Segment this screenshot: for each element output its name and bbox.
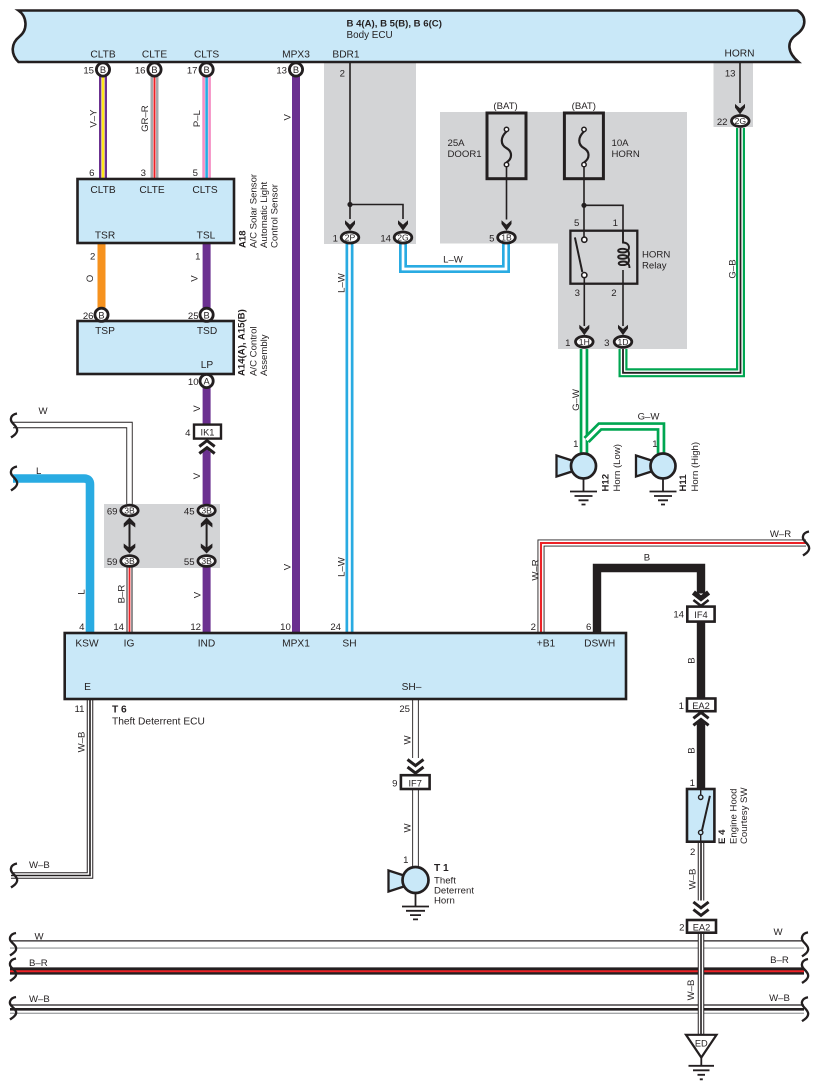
svg-text:B: B xyxy=(100,65,106,75)
svg-text:CLTS: CLTS xyxy=(194,50,219,61)
svg-text:DSWH: DSWH xyxy=(584,639,615,650)
svg-text:W–R: W–R xyxy=(770,529,791,540)
svg-text:V: V xyxy=(192,405,203,412)
svg-text:45: 45 xyxy=(184,507,195,518)
svg-text:2: 2 xyxy=(690,847,695,858)
svg-text:B: B xyxy=(203,65,209,75)
svg-text:(BAT): (BAT) xyxy=(572,101,596,112)
svg-text:CLTE: CLTE xyxy=(139,185,164,196)
svg-text:(BAT): (BAT) xyxy=(493,101,517,112)
svg-text:IK1: IK1 xyxy=(201,428,215,438)
svg-text:B: B xyxy=(687,657,698,663)
svg-text:9: 9 xyxy=(392,779,397,790)
svg-text:5: 5 xyxy=(489,234,494,245)
svg-text:TSD: TSD xyxy=(197,326,217,337)
svg-text:E 4: E 4 xyxy=(717,829,728,844)
svg-text:1: 1 xyxy=(679,701,684,712)
svg-text:CLTB: CLTB xyxy=(90,185,115,196)
svg-text:5: 5 xyxy=(574,218,579,229)
svg-text:11: 11 xyxy=(75,704,85,715)
svg-text:BDR1: BDR1 xyxy=(332,50,360,61)
svg-text:T 6: T 6 xyxy=(112,705,127,716)
svg-text:IF4: IF4 xyxy=(694,610,707,620)
svg-text:W–B: W–B xyxy=(29,860,50,871)
svg-text:3: 3 xyxy=(141,168,146,179)
svg-text:10A: 10A xyxy=(612,138,630,149)
svg-text:Horn (Low): Horn (Low) xyxy=(612,444,623,491)
svg-text:W: W xyxy=(39,406,49,417)
svg-text:O: O xyxy=(85,275,96,282)
svg-text:15: 15 xyxy=(83,66,94,77)
svg-text:V: V xyxy=(193,591,204,598)
svg-text:Courtesy SW: Courtesy SW xyxy=(739,787,750,844)
svg-text:17: 17 xyxy=(187,66,198,77)
svg-text:2P: 2P xyxy=(345,233,356,243)
svg-text:13: 13 xyxy=(725,69,736,80)
svg-text:24: 24 xyxy=(330,622,341,633)
svg-text:L–W: L–W xyxy=(337,556,348,577)
svg-text:1: 1 xyxy=(652,439,657,450)
svg-text:+B1: +B1 xyxy=(537,639,556,650)
svg-text:25: 25 xyxy=(188,311,199,322)
svg-text:1: 1 xyxy=(403,855,408,866)
svg-text:B 4(A), B 5(B), B 6(C): B 4(A), B 5(B), B 6(C) xyxy=(347,19,442,30)
svg-text:TSL: TSL xyxy=(197,231,216,242)
svg-text:W–B: W–B xyxy=(688,869,699,890)
svg-text:1: 1 xyxy=(565,338,570,349)
svg-text:H12: H12 xyxy=(601,474,612,492)
svg-text:1B: 1B xyxy=(501,233,512,243)
svg-text:2: 2 xyxy=(90,252,95,263)
svg-text:W: W xyxy=(403,823,414,833)
svg-text:IF7: IF7 xyxy=(408,778,421,788)
svg-text:TSP: TSP xyxy=(95,326,115,337)
svg-text:HORN: HORN xyxy=(642,250,670,261)
svg-text:LP: LP xyxy=(201,360,214,371)
svg-text:KSW: KSW xyxy=(75,639,99,650)
svg-text:1: 1 xyxy=(333,234,338,245)
svg-text:A14(A), A15(B): A14(A), A15(B) xyxy=(237,309,248,376)
svg-text:W: W xyxy=(403,735,414,745)
svg-text:10: 10 xyxy=(280,622,291,633)
svg-text:A: A xyxy=(203,377,210,387)
svg-text:3B: 3B xyxy=(124,506,135,516)
svg-text:2: 2 xyxy=(531,622,536,633)
svg-text:EA2: EA2 xyxy=(692,701,710,711)
svg-text:W–B: W–B xyxy=(29,994,50,1005)
svg-text:2G: 2G xyxy=(735,116,747,126)
svg-text:L: L xyxy=(36,466,42,477)
svg-text:Horn (High): Horn (High) xyxy=(690,442,701,492)
svg-text:CLTB: CLTB xyxy=(90,50,115,61)
svg-text:16: 16 xyxy=(135,66,146,77)
svg-text:TSR: TSR xyxy=(95,231,115,242)
svg-text:V: V xyxy=(283,563,294,570)
svg-text:14: 14 xyxy=(673,610,684,621)
svg-text:L: L xyxy=(77,589,88,595)
svg-text:Horn: Horn xyxy=(434,896,455,907)
svg-text:4: 4 xyxy=(79,622,85,633)
svg-text:H11: H11 xyxy=(678,474,689,492)
svg-text:HORN: HORN xyxy=(612,149,640,160)
svg-text:G–W: G–W xyxy=(571,388,582,411)
svg-text:Assembly: Assembly xyxy=(259,334,270,376)
svg-text:HORN: HORN xyxy=(725,49,755,60)
svg-text:W: W xyxy=(773,927,783,938)
svg-text:B–R: B–R xyxy=(770,955,789,966)
svg-text:4: 4 xyxy=(185,428,191,439)
svg-text:14: 14 xyxy=(380,234,391,245)
svg-text:55: 55 xyxy=(184,557,195,568)
svg-text:W–B: W–B xyxy=(686,980,697,1001)
svg-text:A/C Control: A/C Control xyxy=(249,326,260,376)
svg-text:Theft Deterrent ECU: Theft Deterrent ECU xyxy=(112,717,205,728)
svg-text:Body ECU: Body ECU xyxy=(347,30,393,41)
svg-text:W: W xyxy=(35,932,45,943)
svg-text:EA2: EA2 xyxy=(693,922,711,932)
svg-text:A18: A18 xyxy=(238,230,249,248)
svg-text:B–R: B–R xyxy=(29,958,48,969)
svg-text:2: 2 xyxy=(611,288,616,299)
svg-text:25A: 25A xyxy=(448,138,466,149)
svg-text:5: 5 xyxy=(193,168,198,179)
svg-text:B: B xyxy=(98,310,104,320)
svg-text:1D: 1D xyxy=(618,337,629,347)
svg-text:26: 26 xyxy=(83,311,94,322)
svg-text:1: 1 xyxy=(690,778,695,789)
svg-text:6: 6 xyxy=(89,168,94,179)
svg-text:B: B xyxy=(644,553,650,564)
svg-text:Engine Hood: Engine Hood xyxy=(729,789,740,844)
svg-text:12: 12 xyxy=(190,622,201,633)
svg-text:B: B xyxy=(293,65,299,75)
svg-text:B–R: B–R xyxy=(117,585,128,604)
svg-text:3B: 3B xyxy=(124,556,135,566)
svg-text:14: 14 xyxy=(113,622,124,633)
svg-text:2: 2 xyxy=(679,923,684,934)
svg-text:3B: 3B xyxy=(201,556,212,566)
svg-text:22: 22 xyxy=(717,117,728,128)
svg-text:13: 13 xyxy=(276,66,287,77)
svg-text:MPX3: MPX3 xyxy=(282,50,310,61)
svg-text:3B: 3B xyxy=(201,506,212,516)
svg-text:2: 2 xyxy=(340,69,345,80)
svg-text:MPX1: MPX1 xyxy=(282,639,310,650)
svg-text:CLTS: CLTS xyxy=(192,185,217,196)
svg-text:6: 6 xyxy=(586,622,591,633)
svg-text:SH: SH xyxy=(342,639,356,650)
svg-text:IND: IND xyxy=(198,639,216,650)
svg-text:B: B xyxy=(203,310,209,320)
svg-text:W–R: W–R xyxy=(531,559,542,580)
svg-text:3: 3 xyxy=(575,288,580,299)
svg-text:G–W: G–W xyxy=(638,411,661,422)
svg-text:P–L: P–L xyxy=(192,109,203,127)
svg-text:V–Y: V–Y xyxy=(89,109,100,128)
svg-text:3: 3 xyxy=(604,338,609,349)
svg-text:ED: ED xyxy=(695,1039,708,1049)
svg-text:V: V xyxy=(283,114,294,121)
svg-text:CLTE: CLTE xyxy=(142,50,167,61)
svg-text:1: 1 xyxy=(613,218,618,229)
svg-text:2G: 2G xyxy=(397,233,409,243)
svg-text:B: B xyxy=(687,747,698,753)
svg-text:W–B: W–B xyxy=(77,732,88,753)
svg-text:DOOR1: DOOR1 xyxy=(448,149,482,160)
svg-text:V: V xyxy=(190,275,201,282)
svg-text:E: E xyxy=(84,682,91,693)
svg-text:1H: 1H xyxy=(579,337,590,347)
svg-text:T 1: T 1 xyxy=(434,863,449,874)
svg-text:Automatic Light: Automatic Light xyxy=(259,182,270,248)
svg-text:W–B: W–B xyxy=(769,993,790,1004)
svg-text:B: B xyxy=(151,65,157,75)
svg-text:IG: IG xyxy=(124,639,135,650)
svg-text:A/C Solar Sensor: A/C Solar Sensor xyxy=(249,173,260,248)
svg-text:L–W: L–W xyxy=(337,272,348,293)
svg-text:59: 59 xyxy=(107,557,118,568)
svg-text:1: 1 xyxy=(573,439,578,450)
svg-text:10: 10 xyxy=(188,377,199,388)
svg-text:Relay: Relay xyxy=(642,261,667,272)
svg-text:1: 1 xyxy=(195,252,200,263)
svg-text:GR–R: GR–R xyxy=(140,105,151,132)
svg-text:V: V xyxy=(192,472,203,479)
svg-text:Control Sensor: Control Sensor xyxy=(270,183,281,248)
svg-text:69: 69 xyxy=(107,507,118,518)
svg-text:25: 25 xyxy=(399,704,410,715)
svg-text:G–B: G–B xyxy=(728,259,739,278)
svg-text:SH–: SH– xyxy=(402,682,422,693)
svg-text:L–W: L–W xyxy=(443,255,464,266)
